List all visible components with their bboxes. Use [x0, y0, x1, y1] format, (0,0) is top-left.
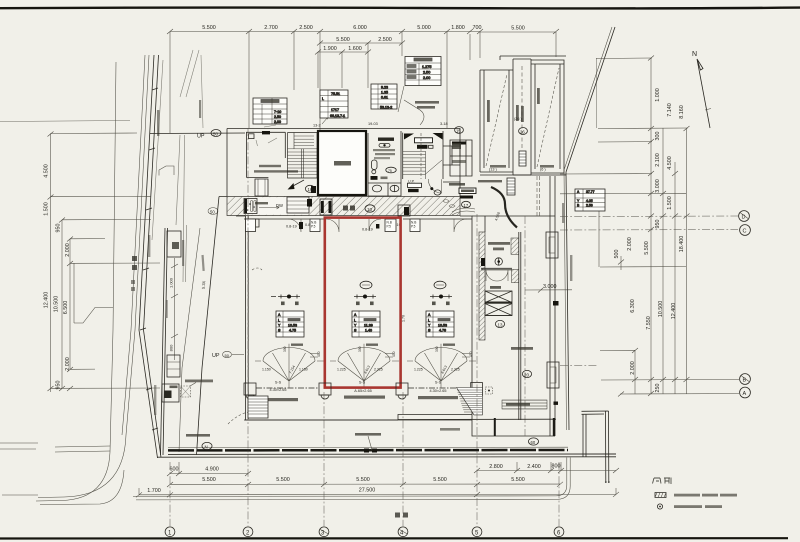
svg-text:U.P.: U.P. [408, 179, 415, 183]
svg-text:S-S: S-S [275, 381, 282, 385]
svg-text:300: 300 [435, 346, 439, 352]
svg-text:13-2: 13-2 [313, 124, 321, 128]
svg-text:2.800: 2.800 [489, 464, 503, 470]
svg-text:50: 50 [213, 131, 219, 136]
svg-text:2.500: 2.500 [299, 25, 313, 31]
svg-text:2.325: 2.325 [374, 368, 383, 372]
svg-text:2.00: 2.00 [423, 76, 430, 80]
svg-text:5.000: 5.000 [417, 25, 431, 31]
svg-text:1717: 1717 [331, 108, 339, 112]
svg-text:13: 13 [498, 322, 504, 327]
svg-text:0.8-19: 0.8-19 [286, 225, 297, 229]
svg-text:7.140: 7.140 [667, 103, 673, 117]
svg-text:4.500: 4.500 [44, 164, 50, 178]
svg-text:(26 ): (26 ) [514, 117, 523, 121]
svg-text:4.76: 4.76 [439, 329, 446, 333]
svg-text:C: C [743, 229, 747, 235]
svg-text:5.500: 5.500 [202, 25, 216, 31]
svg-text:UP: UP [197, 134, 205, 140]
svg-text:1.150: 1.150 [299, 368, 308, 372]
svg-text:5.500: 5.500 [511, 477, 525, 483]
svg-text:10.500: 10.500 [54, 296, 60, 313]
svg-text:11.39: 11.39 [364, 324, 373, 328]
svg-text:P.5: P.5 [311, 225, 316, 229]
svg-text:50: 50 [210, 209, 215, 214]
svg-text:7.550: 7.550 [646, 316, 652, 330]
svg-text:60: 60 [531, 440, 536, 445]
svg-text:450: 450 [317, 351, 321, 357]
svg-text:1.40: 1.40 [365, 329, 372, 333]
svg-text:1.150: 1.150 [262, 368, 271, 372]
svg-text:19-03: 19-03 [368, 122, 378, 126]
svg-text:P.5: P.5 [387, 225, 392, 229]
svg-text:15: 15 [456, 128, 461, 133]
svg-text:300: 300 [283, 346, 287, 352]
svg-text:2.325: 2.325 [451, 368, 460, 372]
svg-text:10: 10 [367, 207, 373, 212]
svg-text:450: 450 [392, 351, 396, 357]
svg-text:300: 300 [655, 132, 661, 141]
svg-text:26: 26 [520, 129, 525, 134]
svg-text:2.100: 2.100 [655, 153, 661, 167]
svg-text:2.000: 2.000 [65, 357, 71, 371]
svg-text:4.75: 4.75 [289, 329, 296, 333]
svg-text:2.50: 2.50 [274, 115, 281, 119]
svg-text:66.13.7-1: 66.13.7-1 [330, 114, 345, 118]
svg-text:1.700: 1.700 [147, 488, 161, 494]
svg-text:10.53: 10.53 [288, 324, 297, 328]
svg-text:950: 950 [56, 224, 62, 233]
svg-text:75: 75 [388, 169, 392, 173]
svg-text:S-S: S-S [359, 381, 366, 385]
svg-text:12.400: 12.400 [44, 292, 50, 309]
svg-text:2.400: 2.400 [527, 464, 541, 470]
svg-text:4.500: 4.500 [667, 156, 673, 170]
svg-text:1.500: 1.500 [44, 202, 50, 216]
svg-text:5.500: 5.500 [336, 37, 350, 43]
svg-text:500: 500 [614, 250, 620, 259]
svg-text:1.000: 1.000 [169, 277, 174, 288]
svg-text:A: A [743, 391, 747, 397]
svg-text:1.500: 1.500 [667, 196, 673, 210]
svg-text:1.70: 1.70 [402, 315, 406, 322]
svg-text:2.700: 2.700 [264, 25, 278, 31]
svg-text:10.53: 10.53 [438, 324, 447, 328]
svg-text:5.500: 5.500 [356, 477, 370, 483]
svg-text:4.900: 4.900 [205, 466, 219, 472]
svg-text:4.30×2.65: 4.30×2.65 [430, 389, 447, 393]
svg-text:1.600: 1.600 [348, 46, 362, 52]
svg-text:3.000: 3.000 [543, 284, 557, 290]
svg-text:2.000: 2.000 [65, 243, 71, 257]
svg-text:2.500: 2.500 [378, 37, 392, 43]
svg-text:3.000: 3.000 [655, 179, 661, 193]
svg-text:5.500: 5.500 [433, 477, 447, 483]
svg-text:18.400: 18.400 [679, 236, 685, 253]
svg-text:P.5: P.5 [411, 225, 416, 229]
svg-text:L: L [322, 97, 324, 101]
svg-text:700: 700 [473, 25, 482, 31]
svg-text:1.900: 1.900 [323, 46, 337, 52]
svg-text:1.275: 1.275 [422, 65, 432, 69]
svg-text:0.61: 0.61 [381, 96, 388, 100]
svg-text:N: N [205, 445, 208, 450]
svg-text:N: N [692, 51, 697, 58]
svg-text:6.300: 6.300 [630, 299, 636, 313]
svg-text:5.500: 5.500 [644, 241, 650, 255]
svg-text:53.13-2: 53.13-2 [380, 106, 392, 110]
svg-text:250: 250 [655, 384, 661, 393]
svg-text:2.000: 2.000 [627, 237, 633, 251]
svg-text:950: 950 [56, 381, 62, 390]
svg-text:300: 300 [358, 346, 362, 352]
svg-text:5.500: 5.500 [511, 26, 525, 32]
svg-text:(6 ): (6 ) [540, 168, 546, 172]
svg-text:3-18: 3-18 [440, 122, 448, 126]
svg-text:4.05: 4.05 [586, 199, 593, 203]
svg-text:1.800: 1.800 [451, 25, 465, 31]
svg-text:1.225: 1.225 [414, 368, 423, 372]
svg-text:S-S: S-S [435, 381, 442, 385]
svg-text:7·10: 7·10 [274, 110, 281, 114]
svg-text:20: 20 [524, 372, 530, 377]
svg-text:9.23: 9.23 [381, 86, 388, 90]
svg-text:800: 800 [169, 344, 174, 351]
svg-text:DW: DW [276, 203, 283, 208]
svg-text:75.51: 75.51 [331, 92, 340, 96]
svg-text:2.00: 2.00 [274, 120, 281, 124]
svg-text:L: L [278, 319, 280, 323]
svg-text:UP: UP [212, 353, 220, 359]
svg-text:8.160: 8.160 [679, 105, 685, 119]
svg-text:2.56: 2.56 [586, 204, 593, 208]
svg-text:L: L [354, 319, 356, 323]
svg-text:600: 600 [170, 466, 179, 472]
svg-text:17: 17 [464, 203, 469, 208]
svg-text:950: 950 [655, 220, 661, 229]
svg-text:D: D [742, 215, 746, 221]
svg-text:1.35: 1.35 [381, 91, 388, 95]
svg-text:4.30×2.65: 4.30×2.65 [270, 388, 287, 392]
svg-text:450: 450 [469, 351, 473, 357]
svg-text:2.000: 2.000 [630, 361, 636, 375]
svg-text:A.65×2.65: A.65×2.65 [354, 389, 371, 393]
svg-text:37.77: 37.77 [586, 190, 595, 194]
svg-text:5.500: 5.500 [276, 477, 290, 483]
svg-text:6.500: 6.500 [63, 301, 69, 315]
svg-text:50: 50 [225, 353, 230, 358]
svg-text:12.400: 12.400 [671, 303, 677, 320]
svg-text:1.000: 1.000 [655, 88, 661, 102]
svg-text:5.500: 5.500 [202, 477, 216, 483]
svg-text:5.3X: 5.3X [201, 280, 207, 289]
svg-text:27.500: 27.500 [359, 488, 376, 494]
svg-text:6.000: 6.000 [353, 25, 367, 31]
svg-text:10.500: 10.500 [658, 301, 664, 318]
svg-text:L: L [428, 319, 430, 323]
svg-text:(13 ): (13 ) [489, 168, 498, 172]
svg-text:1.225: 1.225 [337, 368, 346, 372]
svg-text:2.50: 2.50 [423, 71, 430, 75]
svg-text:0.8-19: 0.8-19 [362, 228, 373, 232]
svg-text:B: B [743, 378, 747, 384]
